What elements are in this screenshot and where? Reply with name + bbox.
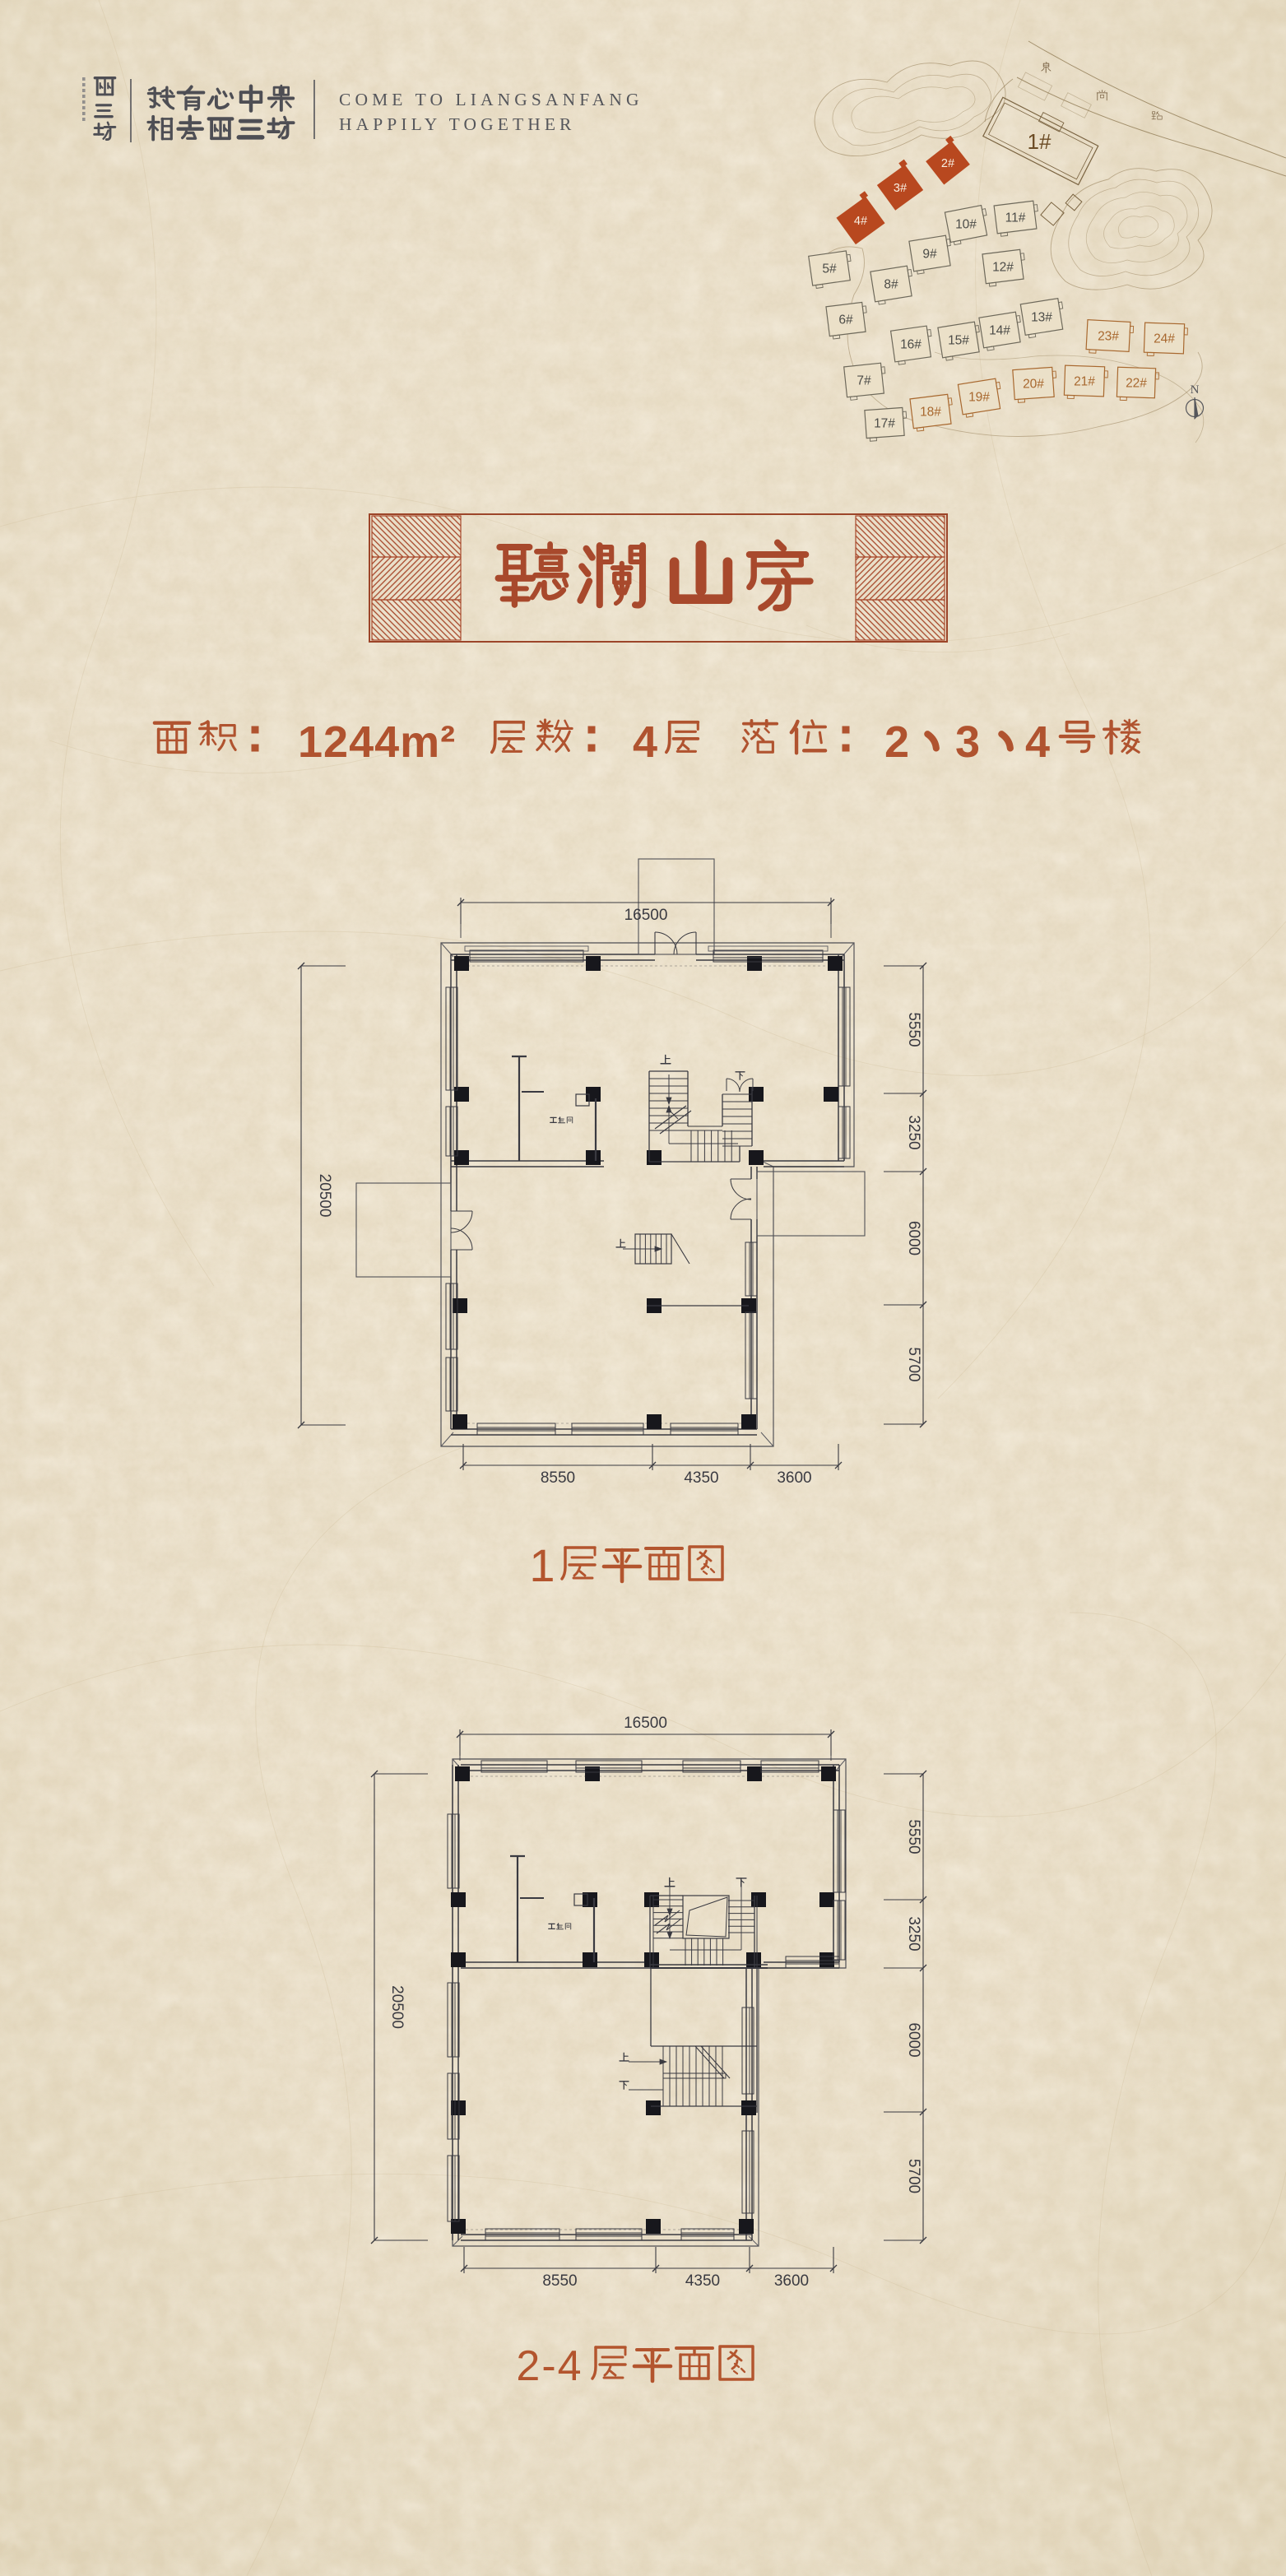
- svg-text:2-4: 2-4: [516, 2342, 583, 2390]
- svg-text:3250: 3250: [905, 1115, 922, 1149]
- svg-text:16500: 16500: [624, 1715, 667, 1732]
- svg-text:6000: 6000: [905, 2022, 922, 2057]
- svg-text:6#: 6#: [838, 313, 853, 327]
- svg-text:16#: 16#: [900, 338, 922, 352]
- svg-text:5550: 5550: [905, 1012, 922, 1047]
- svg-text:14#: 14#: [989, 324, 1010, 338]
- svg-text:5550: 5550: [905, 1819, 922, 1854]
- svg-text:5#: 5#: [822, 262, 837, 276]
- svg-text:20500: 20500: [316, 1174, 333, 1218]
- svg-text:2: 2: [884, 717, 909, 767]
- svg-text:9#: 9#: [922, 248, 937, 262]
- svg-text:12#: 12#: [992, 261, 1014, 275]
- svg-text:20#: 20#: [1023, 378, 1044, 392]
- svg-text:N: N: [1191, 383, 1200, 397]
- svg-text:3: 3: [955, 717, 980, 767]
- svg-text:3600: 3600: [774, 2272, 809, 2290]
- svg-text:18#: 18#: [920, 406, 941, 420]
- svg-text:8#: 8#: [884, 278, 898, 292]
- svg-text:19#: 19#: [968, 391, 990, 405]
- svg-text:11#: 11#: [1005, 211, 1026, 225]
- svg-text:8550: 8550: [542, 2272, 577, 2290]
- svg-text:4: 4: [1025, 717, 1050, 767]
- svg-text:16500: 16500: [624, 907, 668, 924]
- svg-text:COME TO LIANGSANFANG: COME TO LIANGSANFANG: [339, 90, 643, 109]
- svg-text:15#: 15#: [948, 334, 969, 348]
- svg-text:4: 4: [633, 717, 657, 767]
- svg-text:17#: 17#: [874, 417, 895, 431]
- svg-text:HAPPILY TOGETHER: HAPPILY TOGETHER: [339, 114, 576, 134]
- svg-text:4#: 4#: [854, 215, 867, 228]
- svg-text:7#: 7#: [857, 374, 871, 388]
- svg-text:10#: 10#: [955, 218, 977, 232]
- svg-text:20500: 20500: [388, 1985, 406, 2029]
- svg-text:1: 1: [529, 1539, 555, 1591]
- svg-text:6000: 6000: [905, 1221, 922, 1256]
- svg-text:1#: 1#: [1028, 129, 1052, 154]
- svg-text:4350: 4350: [685, 2272, 720, 2290]
- svg-text:22#: 22#: [1126, 377, 1147, 391]
- svg-text:5700: 5700: [905, 2159, 922, 2193]
- svg-text:4350: 4350: [684, 1469, 718, 1487]
- svg-text:3250: 3250: [905, 1916, 922, 1951]
- svg-text:3600: 3600: [777, 1469, 811, 1487]
- svg-text:5700: 5700: [905, 1347, 922, 1381]
- svg-text:21#: 21#: [1074, 375, 1095, 389]
- svg-text:13#: 13#: [1031, 311, 1052, 325]
- svg-text:24#: 24#: [1154, 332, 1175, 346]
- svg-text:8550: 8550: [541, 1469, 575, 1487]
- svg-text:3#: 3#: [894, 182, 907, 195]
- svg-text:1244m²: 1244m²: [298, 717, 456, 767]
- svg-text:2#: 2#: [941, 157, 954, 170]
- svg-text:23#: 23#: [1098, 330, 1119, 344]
